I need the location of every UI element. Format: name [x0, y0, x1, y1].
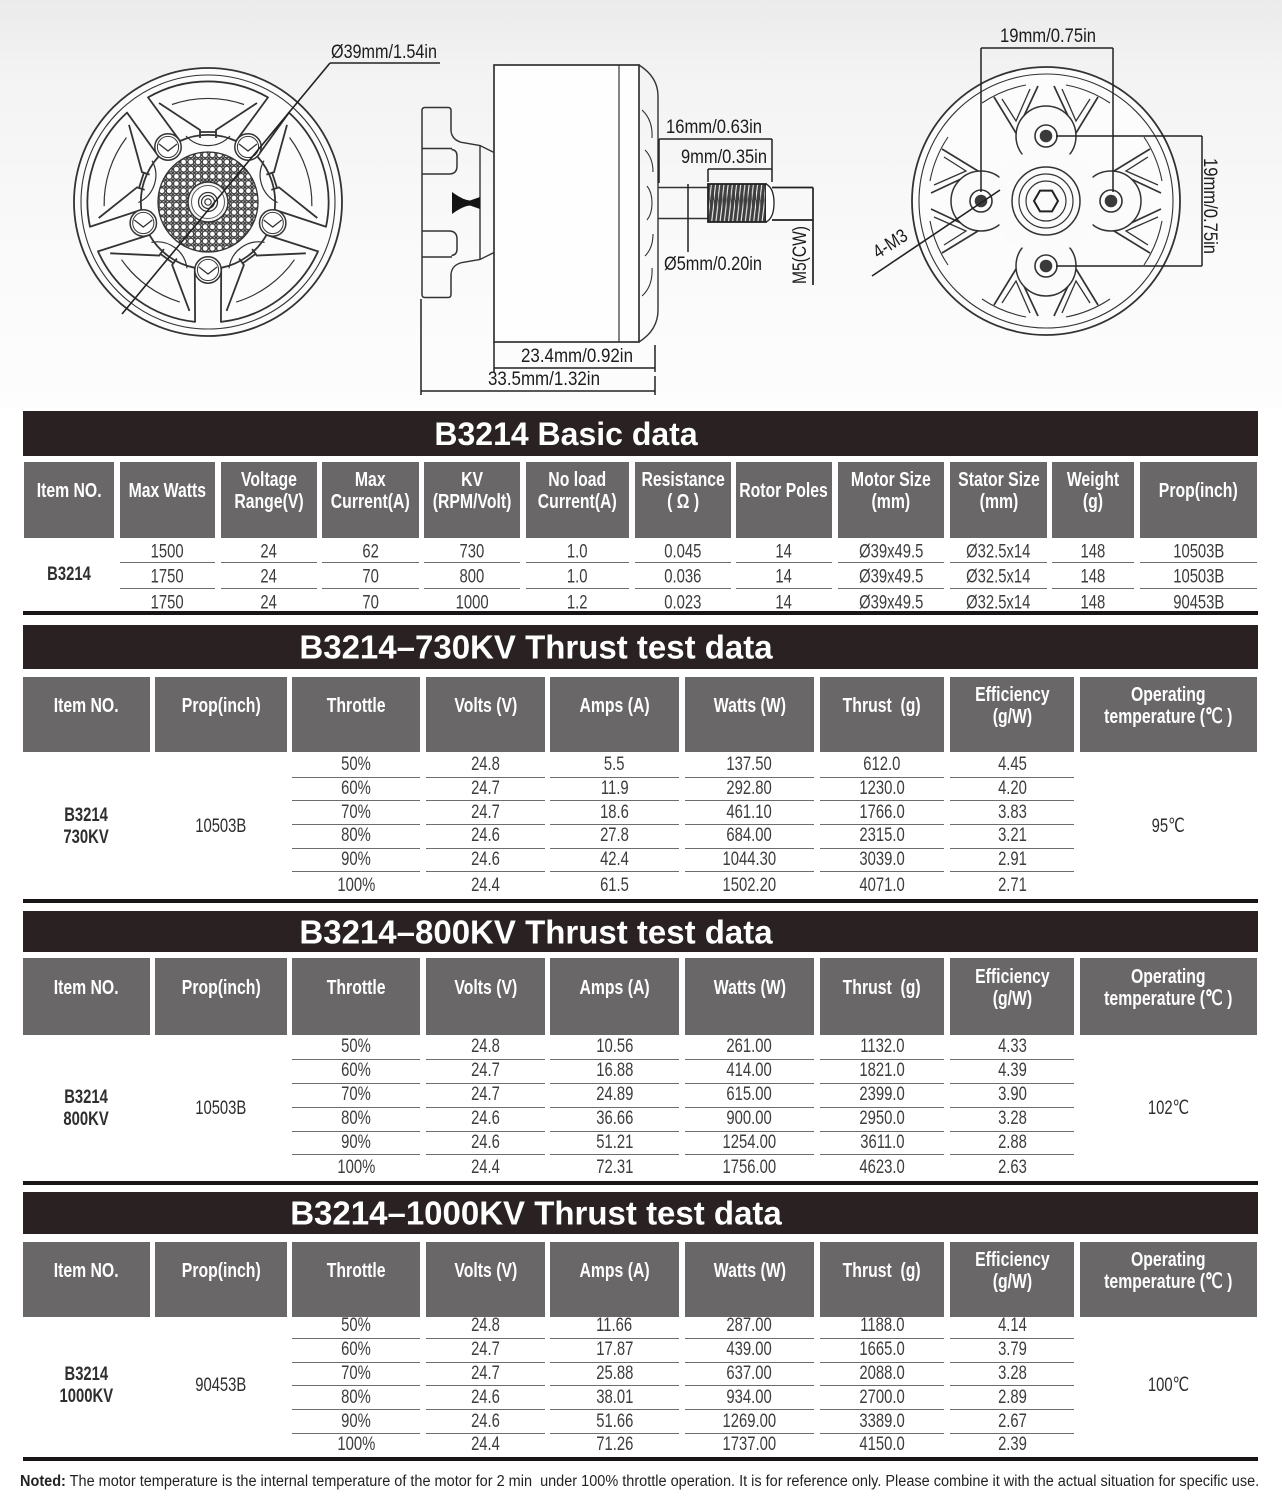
- svg-text:Ø5mm/0.20in: Ø5mm/0.20in: [664, 253, 762, 275]
- svg-text:9mm/0.35in: 9mm/0.35in: [681, 146, 767, 168]
- svg-text:33.5mm/1.32in: 33.5mm/1.32in: [488, 368, 600, 390]
- svg-text:Ø39mm/1.54in: Ø39mm/1.54in: [331, 41, 437, 63]
- svg-text:23.4mm/0.92in: 23.4mm/0.92in: [521, 345, 633, 367]
- svg-text:M5(CW): M5(CW): [789, 226, 811, 284]
- svg-text:19mm/0.75in: 19mm/0.75in: [1000, 25, 1096, 47]
- svg-text:16mm/0.63in: 16mm/0.63in: [666, 116, 762, 138]
- svg-text:4-M3: 4-M3: [869, 225, 911, 263]
